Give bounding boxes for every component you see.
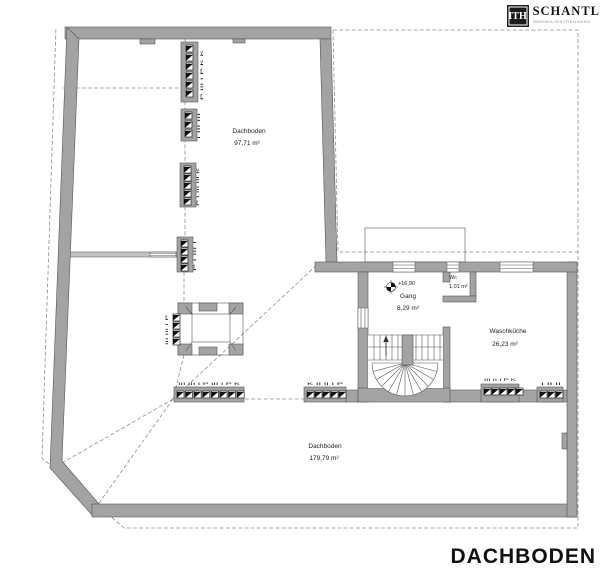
attic-upper-name: Dachboden <box>232 128 266 135</box>
flue-icon <box>184 190 191 197</box>
right-wall-pilaster <box>562 433 567 449</box>
flue-icon <box>173 330 180 337</box>
staircase <box>368 335 443 396</box>
logo-subtitle: IMMOBILIENTREUHAND <box>533 19 600 24</box>
flue-icon <box>339 391 346 398</box>
level-marker <box>384 280 398 294</box>
floorplan-drawing: P III I P K KI III IIIP I III III KP I I… <box>0 0 604 576</box>
flue-icon <box>186 54 193 61</box>
flue-icon <box>315 391 322 398</box>
flue-icon <box>186 391 193 398</box>
flue-icon <box>184 174 191 181</box>
flue-icon <box>186 81 193 88</box>
flue-icon <box>331 391 338 398</box>
chimney-labels-bottom-row-left: III III I P III I P K <box>178 381 241 386</box>
flue-icon <box>307 391 314 398</box>
flue-icon <box>184 182 191 189</box>
waschkueche-name: Waschküche <box>490 328 527 335</box>
flue-icon <box>186 63 193 70</box>
flue-icon <box>184 198 191 205</box>
flue-icon <box>211 391 218 398</box>
right-wall <box>567 262 577 517</box>
chimney-bottom-row-left: III III I P III I P K <box>174 381 244 402</box>
chimney-basin-row-left: III II I P K <box>481 377 523 402</box>
flue-icon <box>177 391 184 398</box>
flue-icon <box>185 130 192 137</box>
flue-icon <box>516 388 523 395</box>
attic-lower-area: 179,79 m² <box>309 455 339 462</box>
chimney-labels-junction-vertical: P I III I <box>192 241 197 271</box>
flue-icon <box>508 388 515 395</box>
flue-icon <box>181 256 188 263</box>
plan-title: DACHBODEN <box>451 545 597 569</box>
top-wall <box>65 27 331 39</box>
flue-icon <box>173 314 180 321</box>
flue-icon <box>323 391 330 398</box>
chimney-labels-shaft-left: III III I P <box>164 314 169 345</box>
chimney-top-vertical: P III I P K K <box>181 42 204 102</box>
flue-icon <box>484 388 491 395</box>
flue-icon <box>186 72 193 79</box>
flue-icon <box>500 388 507 395</box>
chimney-labels-basin-row-right: I II II <box>541 381 561 386</box>
flue-icon <box>203 391 210 398</box>
level-value: +16,90 <box>398 281 415 287</box>
flue-icon <box>185 112 192 119</box>
wc-area: 1,01 m² <box>449 284 468 290</box>
dormer-outline <box>365 228 465 262</box>
company-logo: ITH SCHANTL IMMOBILIENTREUHAND <box>507 5 600 27</box>
flue-icon <box>194 391 201 398</box>
floorplan-canvas: P III I P K KI III IIIP I III III KP I I… <box>0 0 604 576</box>
flue-icon <box>229 391 236 398</box>
flue-icon <box>237 391 244 398</box>
wc-bottom-wall <box>443 296 476 302</box>
chimney-shaft-left: III III I P <box>164 314 180 345</box>
flue-icon <box>540 391 547 398</box>
left-wall <box>50 27 99 515</box>
light-shaft <box>178 303 243 355</box>
top-wall-pilaster-1 <box>140 39 155 44</box>
logo-text-block: SCHANTL IMMOBILIENTREUHAND <box>533 5 600 24</box>
flue-icon <box>173 338 180 345</box>
partition-wall <box>62 252 178 257</box>
roof-perimeter-dashed <box>42 27 578 528</box>
chimney-labels-bottom-row-mid: K II II I P <box>307 381 344 386</box>
flue-icon <box>186 90 193 97</box>
flue-icon <box>181 248 188 255</box>
chimney-mid-vertical-1: I III III <box>181 109 201 141</box>
window-1 <box>393 262 415 272</box>
flue-icon <box>186 45 193 52</box>
chimney-basin-row-right: I II II <box>537 381 563 402</box>
chimney-labels-mid-vertical-1: I III III <box>196 113 201 139</box>
stair-wall-niche <box>358 308 368 328</box>
chimney-junction-vertical: P I III I <box>177 237 197 272</box>
flue-icon <box>548 391 555 398</box>
window-3 <box>500 262 533 272</box>
chimney-bottom-row-mid: K II II I P <box>304 381 346 402</box>
flue-icon <box>181 264 188 271</box>
window-2 <box>447 262 459 272</box>
flue-icon <box>173 322 180 329</box>
attic-upper-area: 97,71 m² <box>234 140 260 147</box>
attic-lower-name: Dachboden <box>308 443 342 450</box>
logo-mark-icon: ITH <box>507 5 529 27</box>
stair-left-wall <box>358 272 368 402</box>
gang-area: 8,29 m² <box>397 305 420 312</box>
roof-inner-dashed <box>333 30 578 252</box>
lower-block-top-wall <box>315 262 577 272</box>
stair-newel <box>402 335 413 365</box>
flue-icon <box>220 391 227 398</box>
top-wall-pilaster-2 <box>233 39 245 43</box>
roof-outline-dashed <box>42 27 578 528</box>
stair-link-wall <box>345 390 358 402</box>
chimney-labels-basin-row-left: III II I P K <box>484 377 517 382</box>
chimney-mid-vertical-2: P I III III K <box>180 163 200 207</box>
flue-icon <box>556 391 563 398</box>
flue-icon <box>184 166 191 173</box>
flue-icon <box>181 240 188 247</box>
chimney-labels-top-vertical: P III I P K K <box>199 49 204 100</box>
wc-name: Wc <box>449 275 457 281</box>
upper-room-right-wall <box>320 39 337 262</box>
chimney-labels-mid-vertical-2: P I III III K <box>195 167 200 206</box>
flue-icon <box>185 121 192 128</box>
wc-right-wall <box>470 272 476 296</box>
gang-name: Gang <box>400 293 416 300</box>
room-labels: Dachboden 97,71 m² Gang 8,29 m² Wc 1,01 … <box>232 128 526 462</box>
bottom-wall <box>92 504 577 517</box>
flue-icon <box>492 388 499 395</box>
waschkueche-area: 26,23 m² <box>492 341 518 348</box>
logo-company-name: SCHANTL <box>533 5 600 18</box>
